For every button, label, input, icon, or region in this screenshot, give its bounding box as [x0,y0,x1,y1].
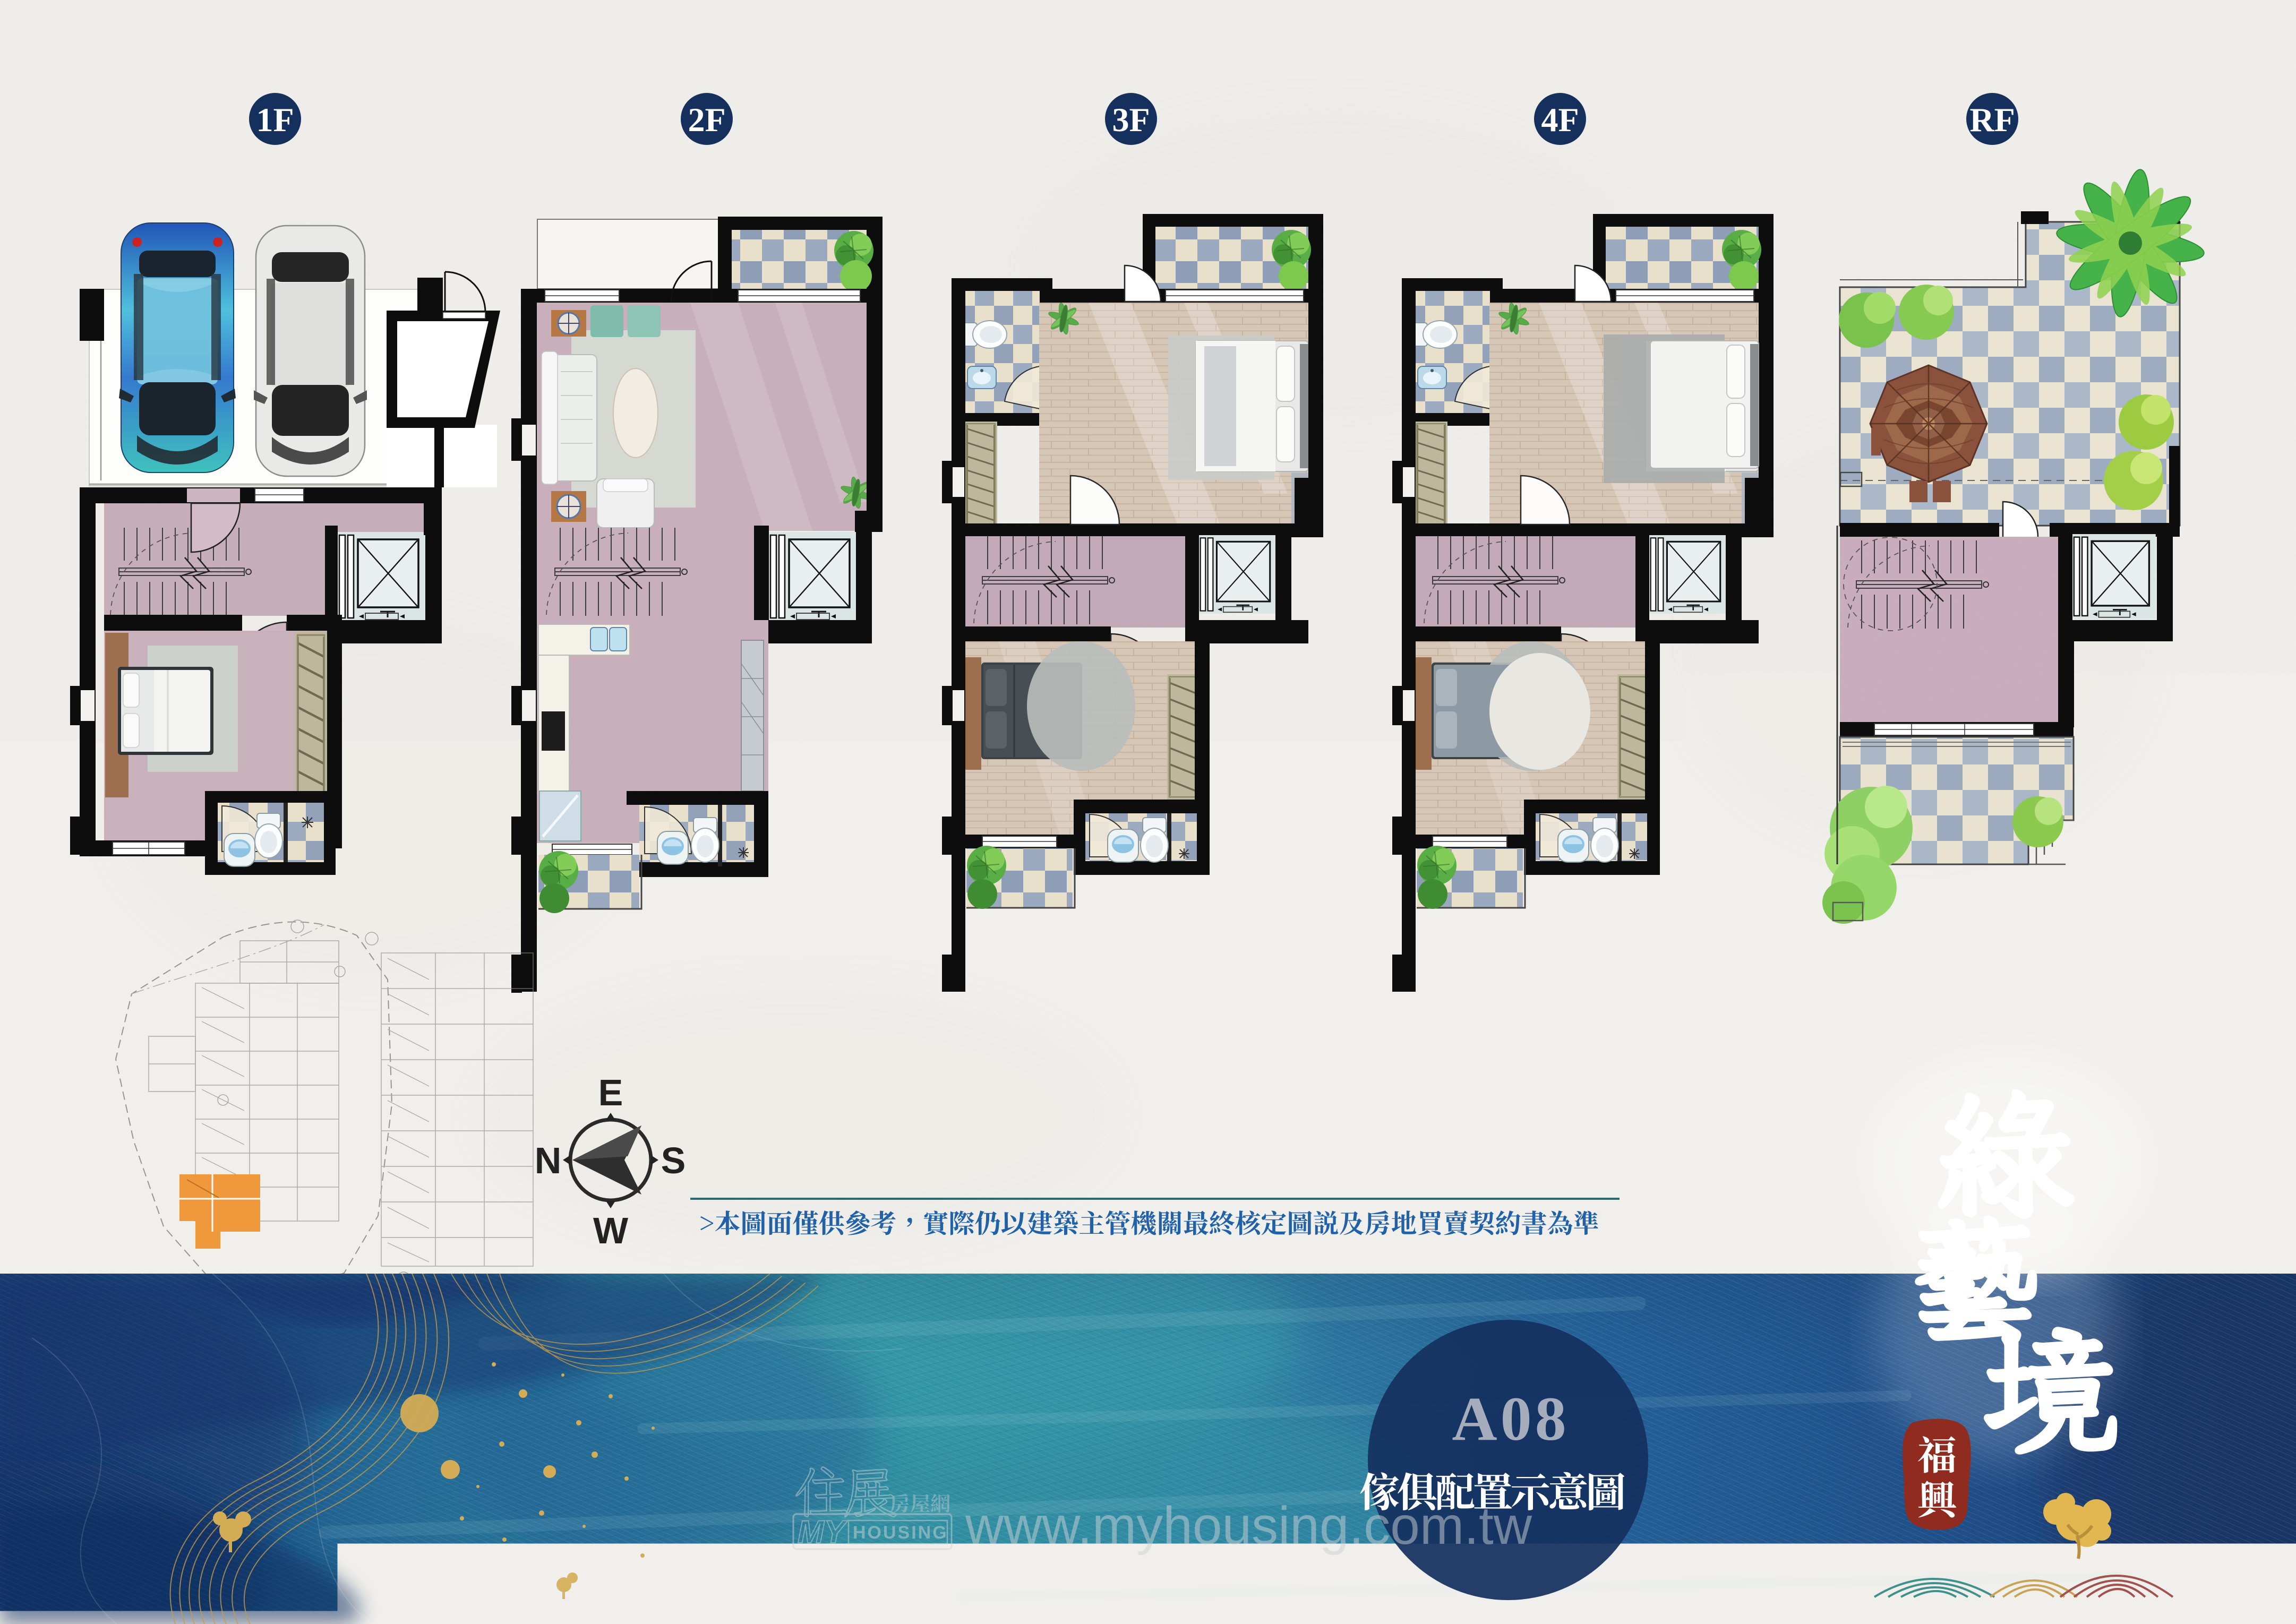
svg-text:A08: A08 [1452,1384,1569,1454]
svg-text:W: W [593,1210,628,1251]
svg-text:N: N [535,1140,562,1181]
svg-text:2F: 2F [688,101,725,139]
svg-text:RF: RF [1969,101,2015,139]
svg-text:3F: 3F [1112,101,1150,139]
svg-text:HOUSING: HOUSING [853,1523,948,1543]
svg-text:4F: 4F [1541,101,1579,139]
svg-text:MY: MY [798,1514,848,1550]
svg-text:1F: 1F [256,101,294,139]
svg-text:www.myhousing.com.tw: www.myhousing.com.tw [965,1496,1532,1556]
svg-text:S: S [661,1140,686,1181]
svg-text:E: E [598,1072,623,1113]
